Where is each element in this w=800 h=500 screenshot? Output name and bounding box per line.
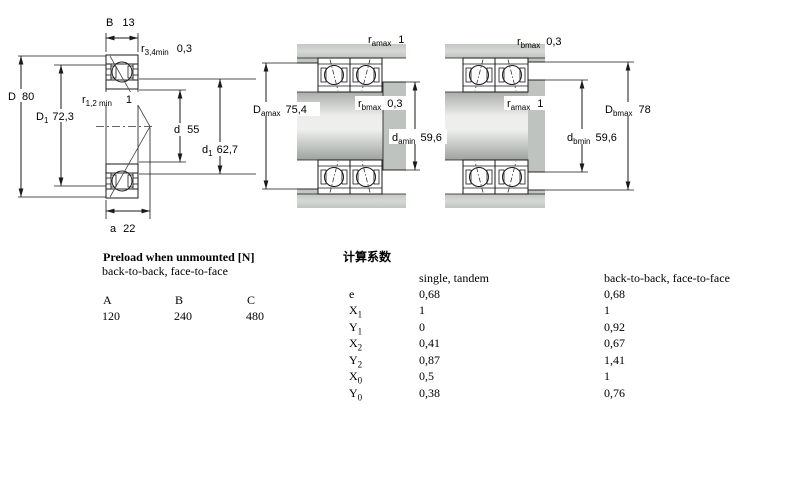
factor-btb-value: 1 — [604, 369, 610, 383]
factor-btb-value: 1,41 — [604, 353, 625, 367]
single-bearing-cross-section — [96, 55, 154, 198]
factor-btb-value: 0,67 — [604, 336, 625, 350]
factor-label: Y0 — [349, 386, 362, 404]
factor-single-value: 1 — [419, 303, 425, 317]
preload-subtitle: back-to-back, face-to-face — [102, 264, 228, 278]
factor-btb-value: 0,92 — [604, 320, 625, 334]
dim-label-a: a22 — [110, 223, 135, 235]
preload-value-C: 480 — [246, 309, 264, 323]
factor-label: X0 — [349, 369, 362, 387]
preload-value-B: 240 — [174, 309, 192, 323]
factor-single-value: 0,38 — [419, 386, 440, 400]
factor-single-value: 0,5 — [419, 369, 434, 383]
factor-single-value: 0,41 — [419, 336, 440, 350]
factor-label: X2 — [349, 336, 362, 354]
preload-col-C: C — [247, 293, 255, 307]
factor-label: X1 — [349, 303, 362, 321]
paired-mounting-diagram-2 — [445, 44, 545, 208]
bearing-pair-top-2 — [463, 58, 528, 92]
factor-btb-value: 0,76 — [604, 386, 625, 400]
factor-single-value: 0,87 — [419, 353, 440, 367]
dim-label-r34: r3,4min0,3 — [141, 43, 192, 57]
paired-mounting-diagram-1 — [297, 44, 406, 208]
bearing-pair-top-1 — [318, 58, 382, 92]
factors-col1-header: single, tandem — [419, 271, 489, 285]
factors-title: 计算系数 — [343, 250, 391, 264]
bearing-pair-bottom-1 — [318, 160, 382, 194]
preload-value-A: 120 — [102, 309, 120, 323]
dim-label-d: d55 — [174, 124, 199, 136]
engineering-drawing: B13 r3,4min0,3 D80 D172,3 r1,2 min1 d55 … — [0, 0, 800, 245]
preload-col-B: B — [175, 293, 183, 307]
dim-label-rbmax-2: rbmax0,3 — [517, 36, 562, 50]
dim-label-B: B13 — [106, 17, 135, 29]
factor-btb-value: 1 — [604, 303, 610, 317]
preload-col-A: A — [103, 293, 112, 307]
preload-title: Preload when unmounted [N] — [103, 250, 254, 264]
dim-label-D: D80 — [8, 91, 34, 103]
factor-single-value: 0 — [419, 320, 425, 334]
dim-label-D1: D172,3 — [36, 111, 74, 125]
dim-label-d1: d162,7 — [202, 144, 238, 158]
dim-label-ramax-1: ramax1 — [368, 34, 404, 48]
factor-single-value: 0,68 — [419, 287, 440, 301]
factor-btb-value: 0,68 — [604, 287, 625, 301]
factors-col2-header: back-to-back, face-to-face — [604, 271, 730, 285]
datasheet-page: B13 r3,4min0,3 D80 D172,3 r1,2 min1 d55 … — [0, 0, 800, 500]
bearing-pair-bottom-2 — [463, 160, 528, 194]
